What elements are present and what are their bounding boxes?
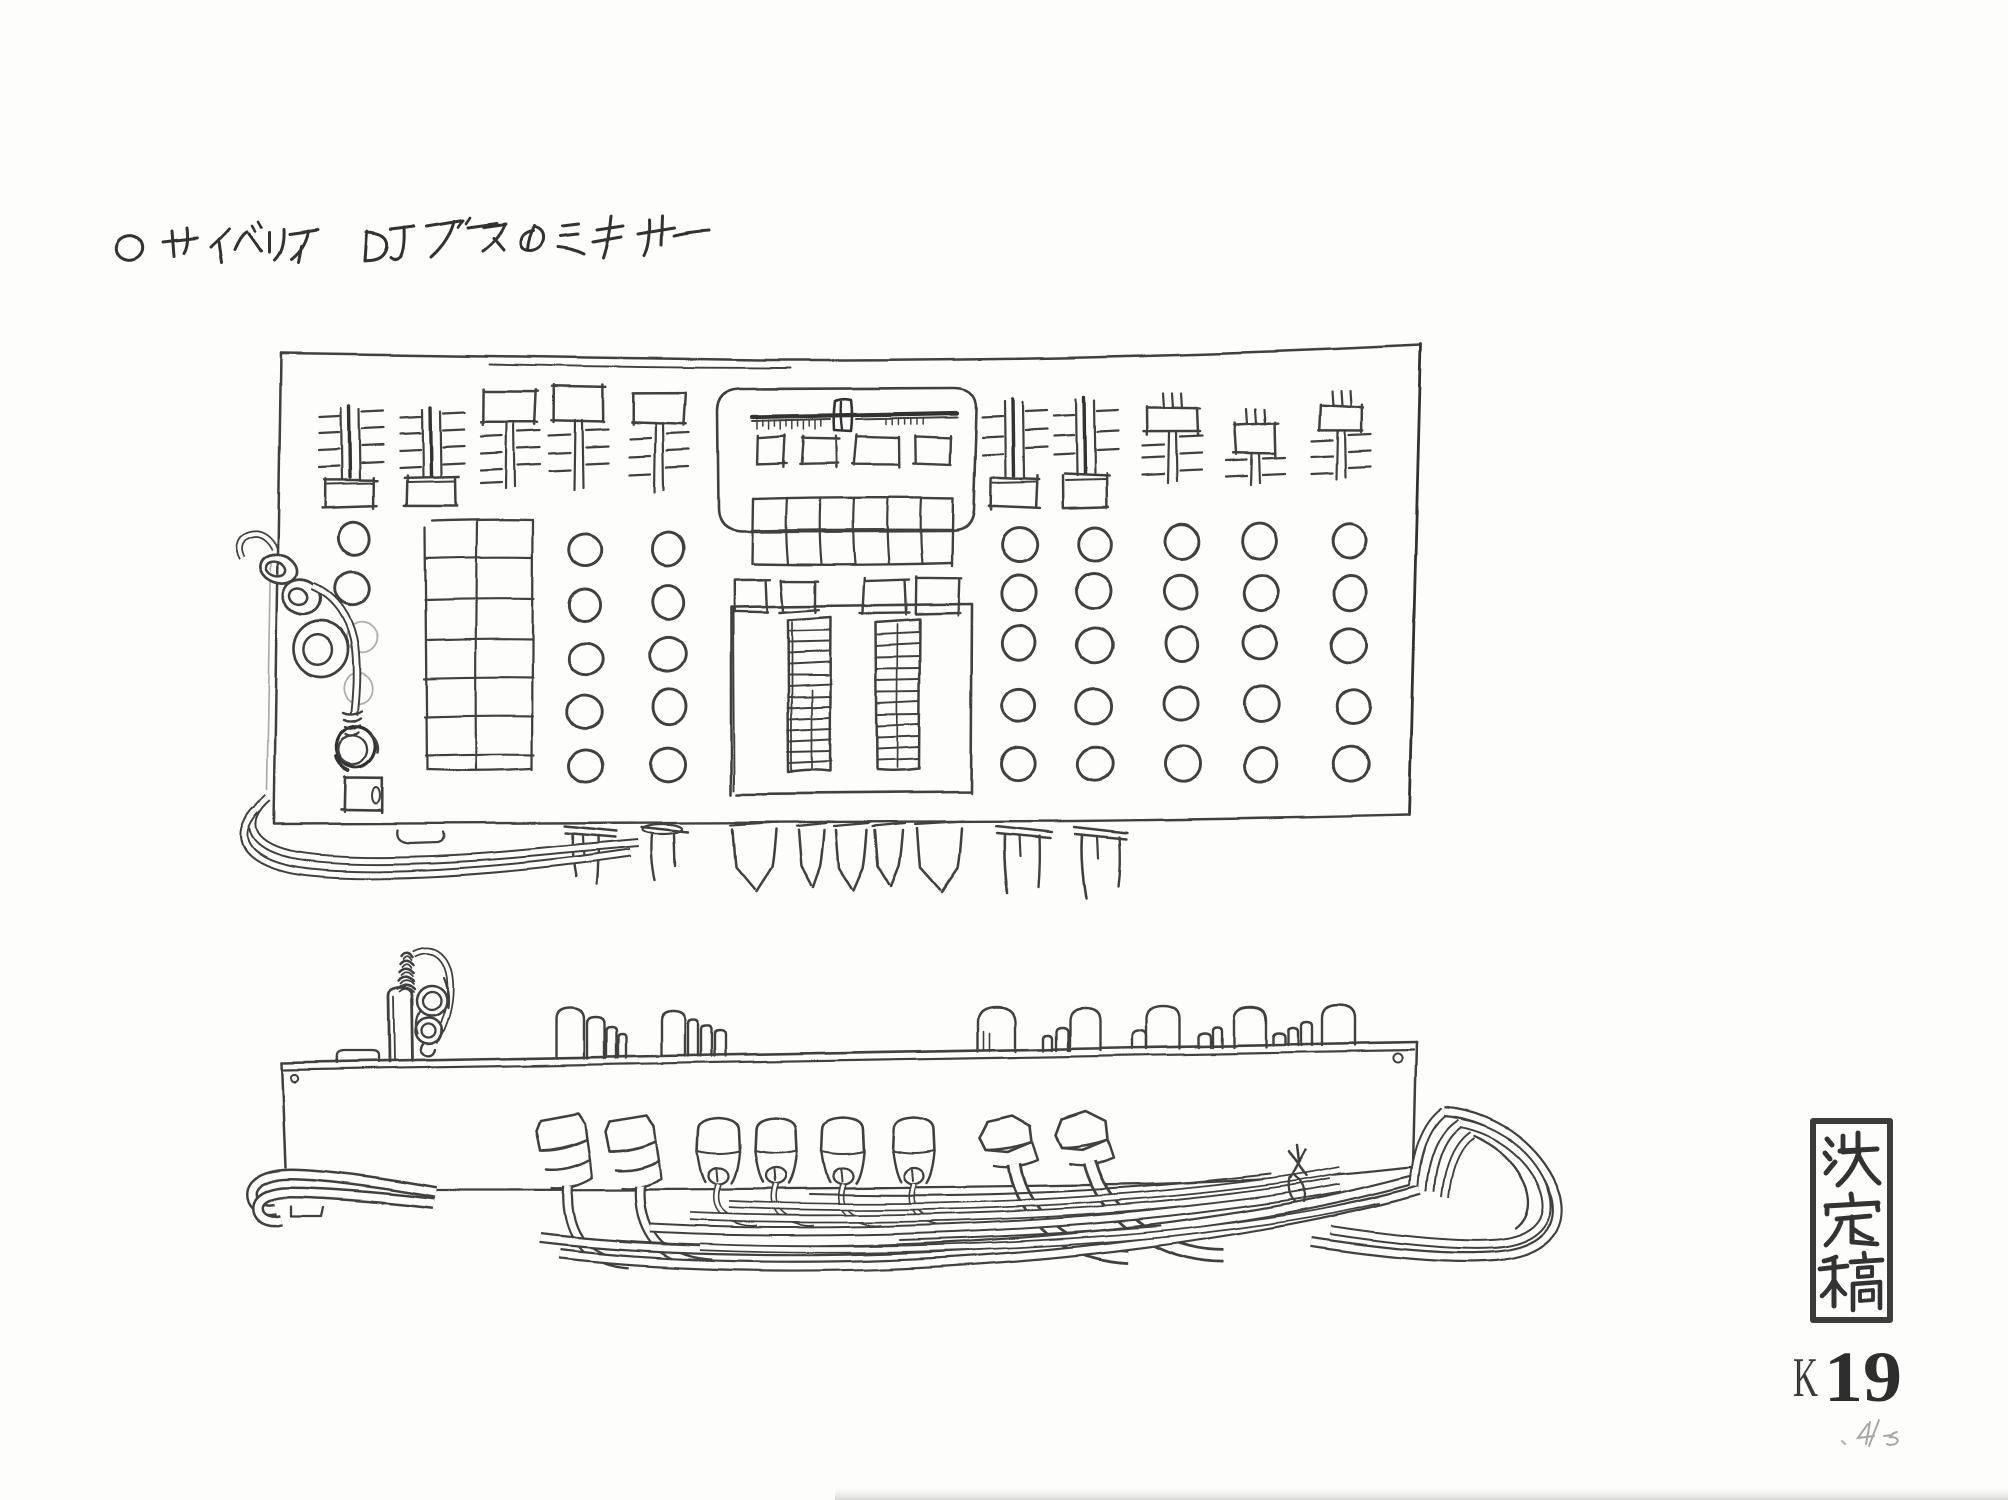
svg-text:K: K [1793,1347,1818,1409]
svg-text:19: 19 [1824,1337,1902,1417]
